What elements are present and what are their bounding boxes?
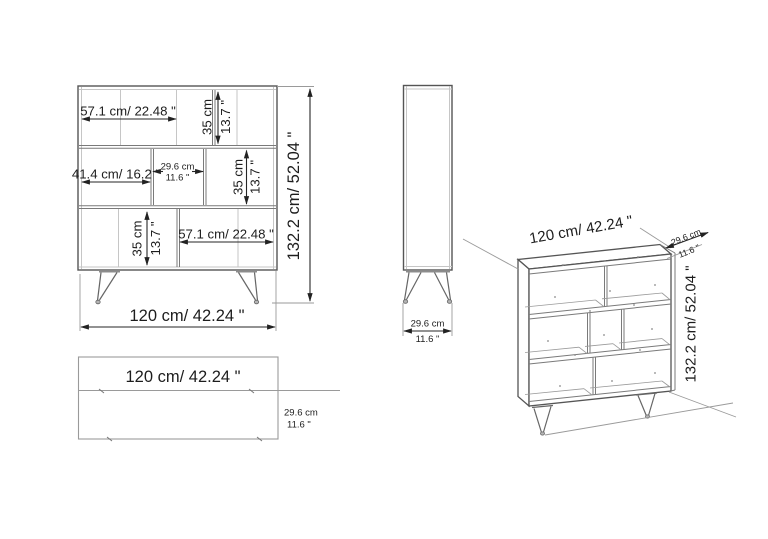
front-view-legs (96, 272, 259, 304)
front-row2-width-label: 41.4 cm/ 16.2 " (72, 167, 161, 182)
top-depth-in-label: 11.6 " (287, 420, 311, 431)
side-view-dimensions: 29.6 cm 11.6 " (403, 303, 452, 345)
front-row2-mid-in-label: 11.6 " (166, 173, 190, 184)
side-depth-cm-label: 29.6 cm (411, 319, 445, 330)
front-row3-height-in-label: 13.7 " (148, 221, 163, 255)
iso-body (518, 245, 675, 407)
front-row1-width-label: 57.1 cm/ 22.48 " (80, 104, 176, 119)
side-view: 29.6 cm 11.6 " (403, 86, 452, 346)
front-overall-height-label: 132.2 cm/ 52.04 " (285, 131, 303, 260)
top-width-label: 120 cm/ 42.24 " (125, 368, 240, 386)
top-view: 120 cm/ 42.24 " 29.6 cm 11.6 " (79, 357, 341, 441)
iso-height-label: 132.2 cm/ 52.04 " (683, 265, 700, 382)
bookcase-technical-drawing: 57.1 cm/ 22.48 " 35 cm 13.7 " 41.4 cm/ 1… (0, 0, 768, 539)
front-row3-width-label: 57.1 cm/ 22.48 " (178, 227, 274, 242)
front-row2-height-in-label: 13.7 " (248, 160, 263, 194)
iso-depth-in-label: 11.6 " (677, 242, 701, 260)
side-view-body (404, 86, 453, 271)
iso-width-label: 120 cm/ 42.24 " (528, 213, 634, 248)
front-row2-height-cm-label: 35 cm (231, 159, 246, 195)
front-row1-height-cm-label: 35 cm (200, 99, 215, 135)
front-view: 57.1 cm/ 22.48 " 35 cm 13.7 " 41.4 cm/ 1… (72, 86, 314, 331)
front-overall-width-label: 120 cm/ 42.24 " (129, 307, 244, 325)
side-depth-in-label: 11.6 " (416, 334, 440, 345)
side-view-legs (403, 272, 451, 304)
top-depth-cm-label: 29.6 cm (284, 408, 318, 419)
top-view-feet-marks (99, 389, 262, 441)
front-row1-height-in-label: 13.7 " (218, 100, 233, 134)
front-row3-height-cm-label: 35 cm (130, 221, 145, 257)
front-row2-mid-cm-label: 29.6 cm (161, 162, 195, 173)
iso-view: 120 cm/ 42.24 " 29.6 cm 11.6 " 132.2 cm/… (463, 213, 736, 436)
